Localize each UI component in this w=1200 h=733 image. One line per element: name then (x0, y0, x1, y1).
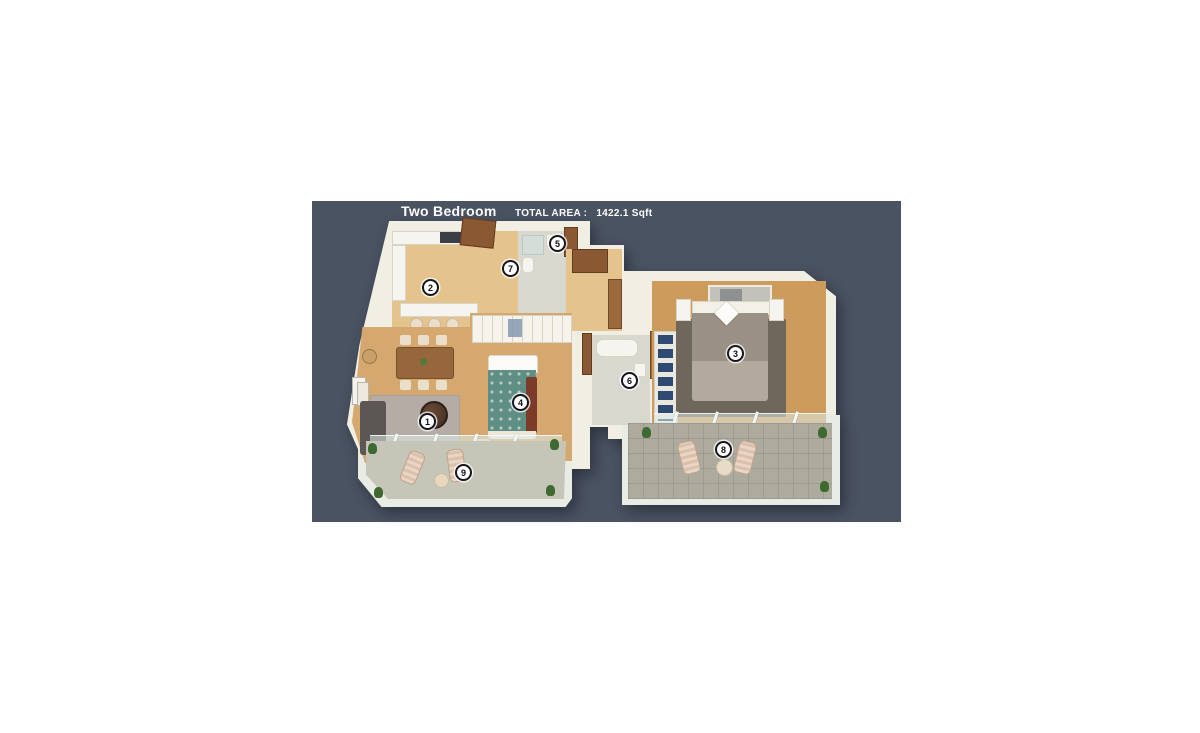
bathroom2-door (582, 333, 592, 375)
potted-plant (374, 487, 383, 498)
room-marker-5: 5 (549, 235, 566, 252)
room-marker-8: 8 (715, 441, 732, 458)
floorplan-render: 1 2 3 4 5 6 7 8 9 (312, 201, 901, 522)
shower-glass (522, 235, 544, 255)
hall-wardrobe (608, 279, 622, 329)
potted-plant (546, 485, 555, 496)
main-double-door (572, 249, 608, 273)
dining-chair (400, 380, 411, 390)
dining-chair (436, 335, 447, 345)
toilet (522, 257, 534, 273)
side-table (362, 349, 377, 364)
dining-chair (436, 380, 447, 390)
potted-plant (368, 443, 377, 454)
kitchen-island (400, 303, 478, 317)
potted-plant (642, 427, 651, 438)
balcony-stool (434, 473, 449, 488)
master-bed-foot (692, 361, 768, 401)
hanging-clothes (508, 319, 522, 337)
potted-plant (818, 427, 827, 438)
entry-door (460, 217, 497, 248)
nightstand (676, 299, 691, 321)
room-marker-9: 9 (455, 464, 472, 481)
master-wall-art-inner (720, 289, 742, 301)
potted-plant (820, 481, 829, 492)
refrigerator-cabinet (392, 245, 406, 301)
bathtub (596, 339, 638, 357)
potted-plant (550, 439, 559, 450)
room-marker-3: 3 (727, 345, 744, 362)
room-marker-2: 2 (422, 279, 439, 296)
page-background: Two Bedroom TOTAL AREA : 1422.1 Sqft (0, 0, 1200, 733)
room-marker-7: 7 (502, 260, 519, 277)
balcony-table (716, 459, 733, 476)
bedroom2-wardrobe (472, 315, 572, 343)
floorplan-panel: Two Bedroom TOTAL AREA : 1422.1 Sqft (312, 201, 901, 522)
dining-chair (418, 335, 429, 345)
dining-chair (418, 380, 429, 390)
room-marker-4: 4 (512, 394, 529, 411)
room-marker-6: 6 (621, 372, 638, 389)
closet-clothes-stack (658, 335, 673, 421)
dining-chair (400, 335, 411, 345)
room-marker-1: 1 (419, 413, 436, 430)
nightstand (769, 299, 784, 321)
table-centerpiece (420, 358, 427, 365)
